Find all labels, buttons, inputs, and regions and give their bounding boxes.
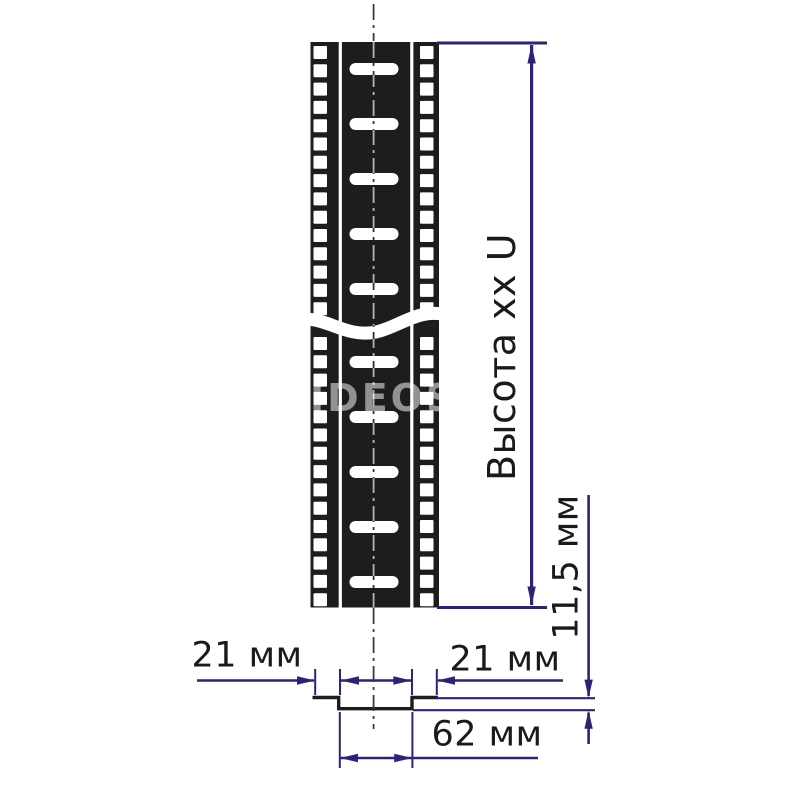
square-hole <box>314 101 328 114</box>
square-hole <box>314 447 328 460</box>
square-hole <box>314 502 328 515</box>
flange-left-dimension-label: 21 мм <box>192 639 303 674</box>
square-hole <box>314 557 328 570</box>
square-hole <box>420 284 434 297</box>
square-hole <box>420 520 434 533</box>
square-hole <box>314 192 328 205</box>
square-hole <box>314 302 328 315</box>
square-hole <box>314 337 328 350</box>
arrow-down-icon <box>584 680 592 698</box>
square-hole <box>314 247 328 260</box>
square-hole <box>420 138 434 151</box>
square-hole <box>314 138 328 151</box>
arrow-left-icon <box>340 754 358 762</box>
square-hole <box>314 174 328 187</box>
arrow-down-icon <box>527 587 535 606</box>
square-hole <box>314 520 328 533</box>
square-hole <box>314 429 328 442</box>
rack-rail <box>294 42 450 608</box>
square-hole <box>420 575 434 588</box>
profile-cross-section <box>313 698 439 709</box>
drawing-canvas: VIDEOS Высота xx U 11,5 мм 21 мм 21 мм 6… <box>0 0 800 800</box>
arrow-right-icon <box>394 754 412 762</box>
square-hole <box>420 192 434 205</box>
square-hole <box>314 465 328 478</box>
square-hole <box>420 101 434 114</box>
square-hole <box>420 429 434 442</box>
square-hole <box>314 266 328 279</box>
square-hole <box>314 211 328 224</box>
square-hole <box>314 119 328 132</box>
square-hole <box>420 447 434 460</box>
square-hole <box>420 64 434 77</box>
square-hole <box>420 229 434 242</box>
square-hole <box>314 46 328 59</box>
square-hole <box>420 211 434 224</box>
square-hole <box>420 156 434 169</box>
square-hole <box>314 355 328 368</box>
square-hole <box>420 483 434 496</box>
square-hole <box>420 502 434 515</box>
square-hole <box>314 83 328 96</box>
square-hole <box>314 284 328 297</box>
watermark-text: VIDEOS <box>278 379 457 417</box>
square-hole <box>420 465 434 478</box>
arrow-left-icon <box>341 676 359 684</box>
square-hole <box>314 538 328 551</box>
square-hole <box>314 593 328 606</box>
square-hole <box>420 119 434 132</box>
square-hole <box>420 557 434 570</box>
depth-dimension-label: 11,5 мм <box>550 494 585 639</box>
square-hole <box>420 83 434 96</box>
square-hole <box>420 355 434 368</box>
square-hole <box>420 266 434 279</box>
square-hole <box>314 483 328 496</box>
square-hole <box>420 538 434 551</box>
height-dimension-label: Высота xx U <box>483 233 521 481</box>
square-hole <box>420 337 434 350</box>
arrow-right-icon <box>393 676 411 684</box>
arrow-up-icon <box>584 711 592 729</box>
arrow-up-icon <box>527 45 535 64</box>
arrow-right-icon <box>297 676 315 684</box>
square-hole <box>420 593 434 606</box>
square-hole <box>314 156 328 169</box>
square-hole <box>314 575 328 588</box>
square-hole <box>420 174 434 187</box>
channel-width-dimension-label: 62 мм <box>432 718 543 753</box>
square-hole <box>420 247 434 260</box>
flange-right-dimension-label: 21 мм <box>450 643 561 678</box>
square-hole <box>314 229 328 242</box>
square-hole <box>314 64 328 77</box>
square-hole <box>420 46 434 59</box>
